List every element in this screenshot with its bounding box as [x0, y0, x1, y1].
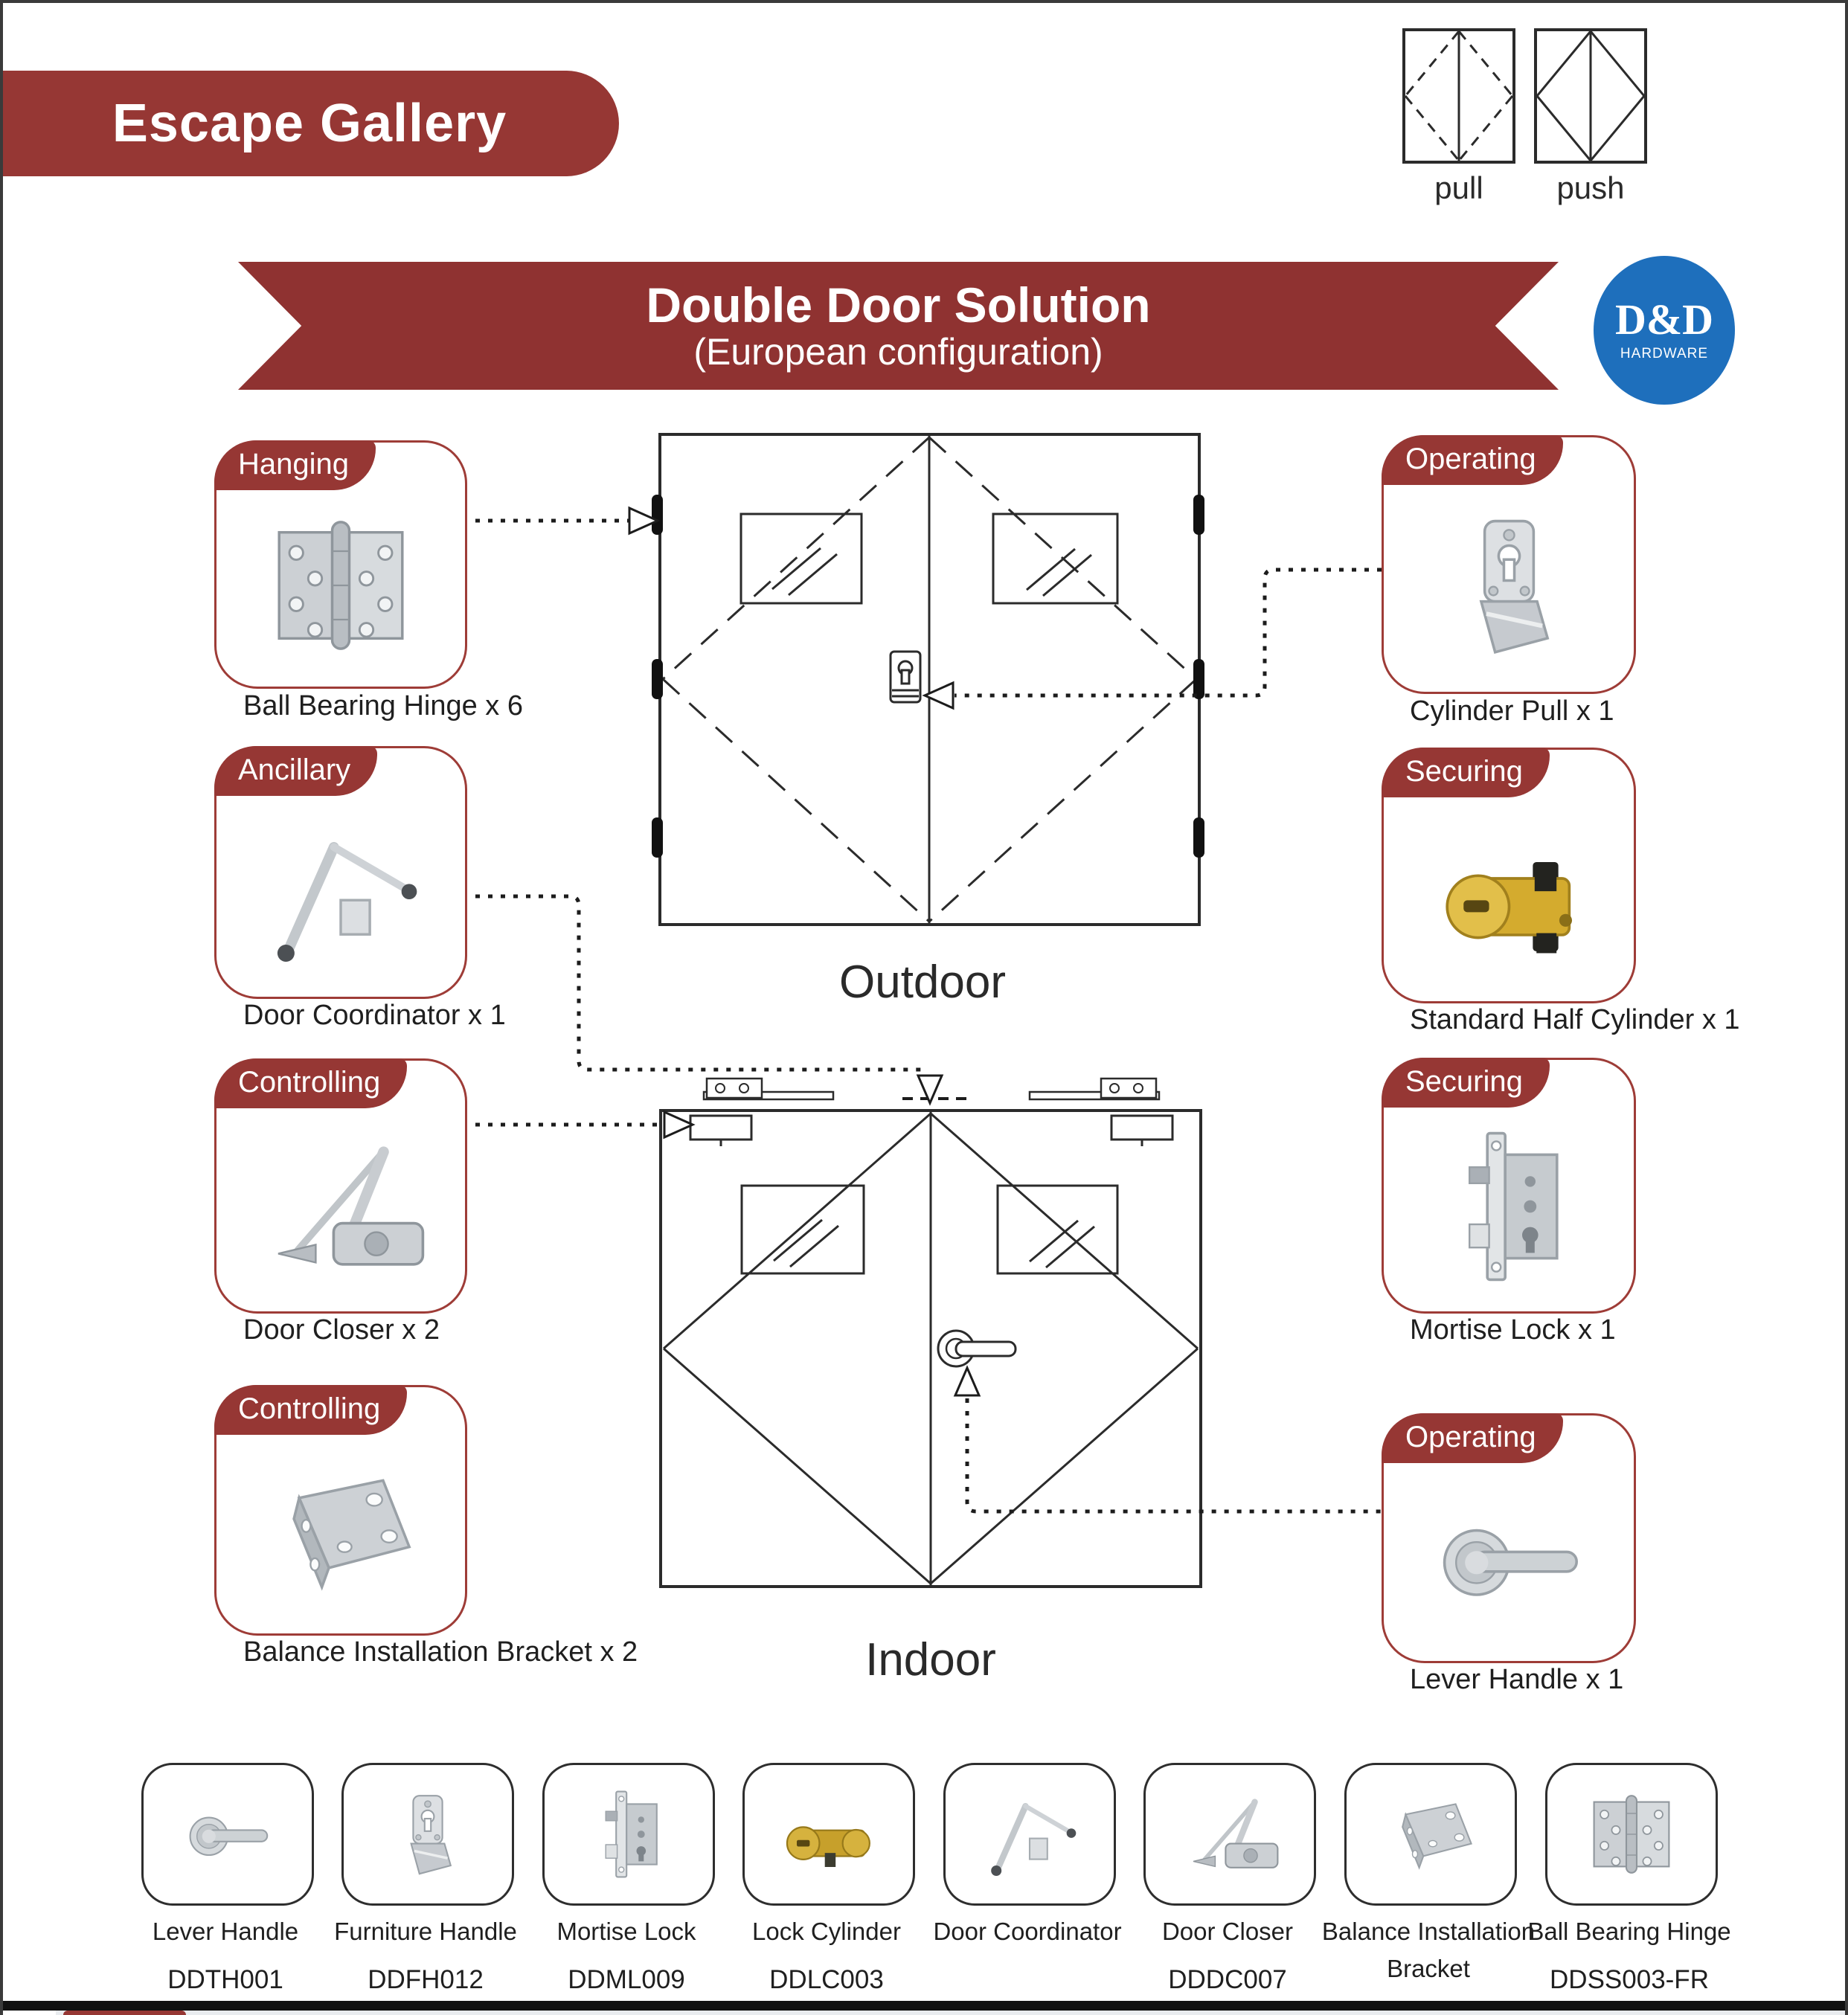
- callout-tag: Ancillary: [214, 746, 377, 796]
- catalog-card-lever-handle: [141, 1763, 314, 1906]
- solution-subtitle: (European configuration): [693, 332, 1103, 373]
- callout-tag: Controlling: [214, 1385, 407, 1435]
- door-closer-illustration: [251, 1118, 430, 1296]
- indoor-label: Indoor: [774, 1633, 1087, 1686]
- callout-lever-handle: Operating: [1382, 1413, 1636, 1663]
- callout-tag: Hanging: [214, 440, 376, 490]
- standard-half-cylinder-illustration: [1418, 806, 1600, 988]
- pull-door-icon: [1402, 28, 1515, 164]
- callout-label: Door Closer x 2: [243, 1314, 440, 1346]
- solution-ribbon: Double Door Solution (European configura…: [238, 262, 1559, 390]
- callout-label: Balance Installation Bracket x 2: [243, 1636, 638, 1668]
- balance-installation-bracket-illustration: [254, 1444, 429, 1619]
- catalog-code: DDFH012: [314, 1965, 537, 1995]
- push-label: push: [1534, 170, 1647, 206]
- door-coordinator-illustration: [978, 1782, 1082, 1886]
- lever-handle-illustration: [176, 1782, 280, 1886]
- catalog-name: Furniture Handle: [314, 1913, 537, 1950]
- catalog-card-ball-bearing-hinge: [1545, 1763, 1718, 1906]
- catalog-code: DDSS003-FR: [1518, 1965, 1741, 1995]
- catalog-card-door-coordinator: [943, 1763, 1116, 1906]
- callout-tag: Operating: [1382, 1413, 1563, 1463]
- callout-tag: Securing: [1382, 1058, 1550, 1108]
- door-coordinator-illustration: [255, 808, 426, 979]
- callout-label: Cylinder Pull x 1: [1410, 695, 1614, 727]
- cylinder-pull-illustration: [1422, 498, 1597, 673]
- callout-label: Ball Bearing Hinge x 6: [243, 690, 523, 722]
- callout-tag: Securing: [1382, 748, 1550, 797]
- mortise-lock-illustration: [1419, 1117, 1598, 1296]
- escape-gallery-banner: Escape Gallery: [0, 71, 619, 176]
- ball-bearing-hinge-illustration: [1579, 1782, 1684, 1886]
- catalog-card-furniture-handle: [341, 1763, 514, 1906]
- outdoor-label: Outdoor: [766, 956, 1079, 1009]
- catalog-name: Mortise Lock: [515, 1913, 738, 1950]
- callout-balance-bracket: Controlling: [214, 1385, 467, 1636]
- cylinder-pull-mark: [891, 652, 920, 702]
- callout-label: Door Coordinator x 1: [243, 1000, 506, 1032]
- legend-pull: pull: [1402, 28, 1515, 206]
- balance-installation-bracket-illustration: [1379, 1782, 1483, 1886]
- callout-label: Lever Handle x 1: [1410, 1664, 1623, 1696]
- mortise-lock-illustration: [577, 1782, 681, 1886]
- callout-door-coordinator: Ancillary: [214, 746, 467, 999]
- callout-half-cylinder: Securing: [1382, 748, 1636, 1003]
- logo-subtitle: HARDWARE: [1620, 346, 1708, 362]
- callout-label: Mortise Lock x 1: [1410, 1314, 1616, 1346]
- catalog-card-balance-bracket: [1344, 1763, 1517, 1906]
- lock-cylinder-illustration: [775, 1781, 883, 1889]
- callout-tag: Controlling: [214, 1058, 407, 1108]
- catalog-name: Lock Cylinder: [715, 1913, 938, 1950]
- bottom-grey-band: [56, 2011, 1848, 2015]
- catalog-card-lock-cylinder: [742, 1763, 915, 1906]
- callout-cylinder-pull: Operating: [1382, 435, 1636, 694]
- callout-hanging-hinge: Hanging: [214, 440, 467, 689]
- swing-legend: pull push: [1402, 28, 1759, 207]
- callout-door-closer: Controlling: [214, 1058, 467, 1314]
- next-section-banner-sliver: [63, 2011, 186, 2015]
- solution-title: Double Door Solution: [646, 279, 1150, 332]
- catalog-code: DDML009: [515, 1965, 738, 1995]
- pull-label: pull: [1402, 170, 1515, 206]
- callout-tag: Operating: [1382, 435, 1563, 485]
- brochure-page: Escape Gallery pull: [0, 0, 1848, 2015]
- catalog-code: DDLC003: [715, 1965, 938, 1995]
- catalog-code: DDTH001: [114, 1965, 337, 1995]
- lever-handle-illustration: [1419, 1470, 1598, 1648]
- catalog-name: Balance Installation Bracket: [1317, 1913, 1540, 1987]
- callout-mortise-lock: Securing: [1382, 1058, 1636, 1314]
- catalog-code: DDDC007: [1116, 1965, 1339, 1995]
- catalog-name: Door Closer: [1116, 1913, 1339, 1950]
- indoor-door-diagram: [661, 1079, 1201, 1587]
- legend-push: push: [1534, 28, 1647, 206]
- catalog-card-mortise-lock: [542, 1763, 715, 1906]
- catalog-name: Ball Bearing Hinge: [1518, 1913, 1741, 1950]
- catalog-name: Door Coordinator: [916, 1913, 1139, 1950]
- dd-hardware-logo: D&D HARDWARE: [1594, 256, 1735, 405]
- catalog-name: Lever Handle: [114, 1913, 337, 1950]
- furniture-handle-illustration: [376, 1782, 480, 1886]
- callout-label: Standard Half Cylinder x 1: [1410, 1004, 1740, 1036]
- door-closer-illustration: [1178, 1782, 1282, 1886]
- ball-bearing-hinge-illustration: [255, 500, 426, 671]
- logo-name: D&D: [1615, 298, 1713, 341]
- catalog-card-door-closer: [1143, 1763, 1316, 1906]
- bottom-divider-band: [0, 2001, 1848, 2011]
- page-title: Escape Gallery: [112, 93, 507, 154]
- push-door-icon: [1534, 28, 1647, 164]
- outdoor-door-diagram: [652, 434, 1204, 925]
